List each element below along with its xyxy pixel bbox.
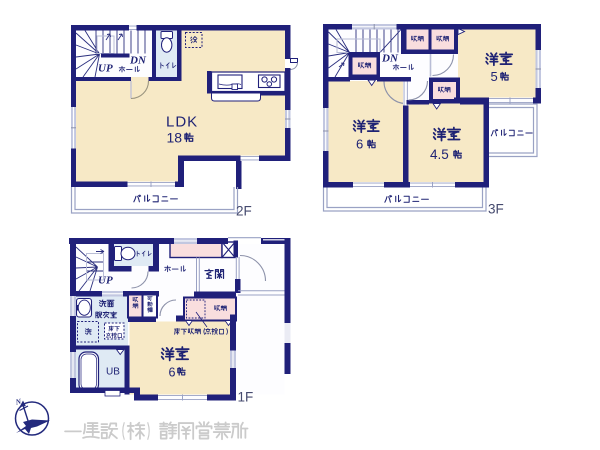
svg-text:N: N (14, 397, 23, 407)
svg-text:3F: 3F (488, 202, 504, 217)
svg-text:2F: 2F (236, 204, 252, 219)
svg-text:UP: UP (98, 275, 113, 287)
svg-text:UP: UP (98, 63, 113, 75)
svg-text:1F: 1F (238, 390, 254, 405)
svg-text:4.5: 4.5 (430, 147, 449, 162)
svg-text:UB: UB (106, 367, 120, 378)
svg-text:6: 6 (356, 137, 363, 152)
svg-text:LDK: LDK (166, 114, 198, 131)
svg-text:DN: DN (129, 55, 147, 67)
svg-text:DN: DN (381, 53, 399, 65)
svg-text:18: 18 (167, 130, 183, 146)
svg-text:5: 5 (491, 69, 498, 84)
svg-text:6: 6 (169, 366, 176, 380)
